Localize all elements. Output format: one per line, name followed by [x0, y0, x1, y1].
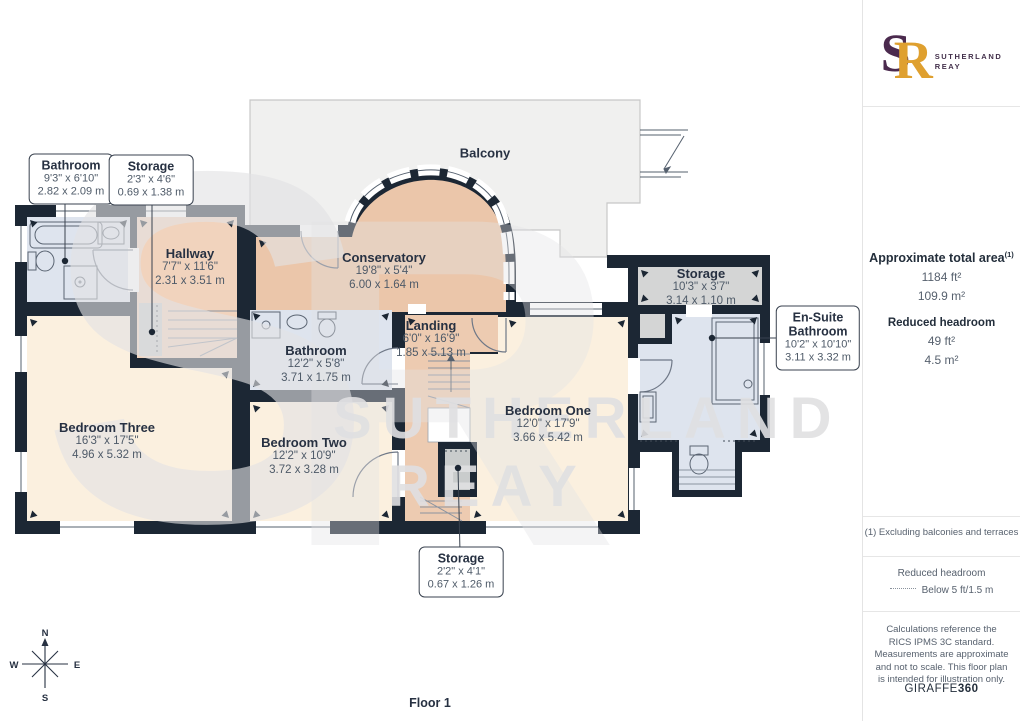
divider [863, 516, 1020, 517]
brand-logo: S R SUTHERLAND REAY [863, 26, 1020, 80]
footnote: (1) Excluding balconies and terraces [863, 527, 1020, 538]
sidebar: S R SUTHERLAND REAY Approximate total ar… [862, 0, 1020, 721]
divider [863, 106, 1020, 107]
reduced-headroom-ft: 49 ft² [863, 334, 1020, 348]
floor-plan-canvas: S R SUTHERLAND REAY N S W E [0, 0, 862, 721]
reduced-headroom-m: 4.5 m² [863, 353, 1020, 367]
logo-r-letter: R [894, 33, 933, 87]
logo-wordmark: SUTHERLAND REAY [935, 52, 1003, 71]
reduced-headroom-title: Reduced headroom [863, 317, 1020, 329]
divider [863, 556, 1020, 557]
total-area-m: 109.9 m² [863, 289, 1020, 303]
room-bathroom-top-left [27, 217, 130, 302]
ensuite-callout: En-Suite Bathroom 10'2" x 10'10" 3.11 x … [776, 306, 860, 371]
dotted-line-icon [890, 588, 916, 589]
room-storage-top-right [638, 267, 762, 305]
svg-text:S: S [42, 693, 48, 704]
escape-ladder-icon [640, 130, 688, 177]
total-area-ft: 1184 ft² [863, 270, 1020, 284]
area-summary: Approximate total area(1) 1184 ft² 109.9… [863, 250, 1020, 367]
legend-row: Below 5 ft/1.5 m [863, 585, 1020, 596]
stairwell-void [428, 408, 470, 442]
compass-icon: N S W E [10, 628, 81, 704]
ensuite-closet [640, 314, 665, 338]
floorplan-page: S R SUTHERLAND REAY N S W E Balcony Hall… [0, 0, 1020, 721]
svg-text:W: W [10, 660, 19, 671]
legend-title: Reduced headroom [863, 568, 1020, 579]
svg-text:N: N [42, 628, 49, 639]
bathroom-tl-callout: Bathroom 9'3" x 6'10" 2.82 x 2.09 m [29, 154, 114, 205]
storage-tl-callout: Storage 2'3" x 4'6" 0.69 x 1.38 m [109, 155, 194, 206]
total-area-title: Approximate total area(1) [863, 250, 1020, 265]
storage-bottom-callout: Storage 2'2" x 4'1" 0.67 x 1.26 m [419, 547, 504, 598]
disclaimer: Calculations reference the RICS IPMS 3C … [874, 624, 1009, 687]
legend-label: Below 5 ft/1.5 m [922, 585, 994, 596]
divider [863, 611, 1020, 612]
floor-label: Floor 1 [409, 696, 451, 710]
svg-text:E: E [74, 660, 80, 671]
giraffe360-logo: GIRAFFE360 [863, 683, 1020, 695]
